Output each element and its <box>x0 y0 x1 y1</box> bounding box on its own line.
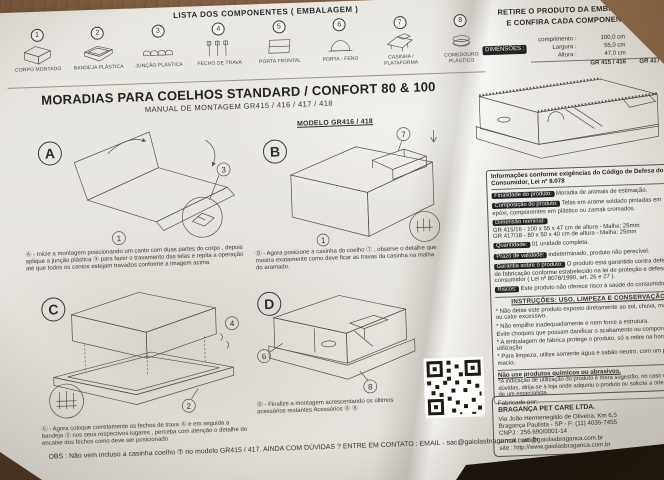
step-c-illustration: 4 2 <box>33 283 245 424</box>
step-c-caption: Ⓒ - Agora coloque corretamente os fechos… <box>41 420 250 448</box>
svg-text:4: 4 <box>230 319 235 328</box>
callout-3: 3 <box>217 163 230 176</box>
plastic-junction-icon <box>139 38 178 63</box>
manual-paper: LISTA DOS COMPONENTES ( EMBALAGEM ) 1 CO… <box>0 0 664 480</box>
svg-text:1: 1 <box>321 236 326 245</box>
component-number: 2 <box>91 27 104 40</box>
svg-text:8: 8 <box>368 382 373 391</box>
consumer-info-panel: Informações conforme exigências do Códig… <box>486 163 664 404</box>
components-row: 1 CORPO MONTADO 2 BANDEJA PLÁSTICA 3 <box>8 13 491 80</box>
svg-text:6: 6 <box>262 352 267 361</box>
dimensions-label: DIMENSÕES : <box>482 45 527 56</box>
finalidade-label: Finalidade do produto: <box>492 191 555 199</box>
photo-of-manual: LISTA DOS COMPONENTES ( EMBALAGEM ) 1 CO… <box>0 0 664 480</box>
front-door-icon <box>260 34 299 59</box>
corner-detail-circle <box>182 197 223 238</box>
component-item-porta-frontal: 5 PORTA FRONTAL <box>249 19 309 66</box>
component-item-juncao: 3 JUNÇÃO PLÁSTICA <box>129 24 189 71</box>
cage-body-icon <box>18 42 57 67</box>
qr-code <box>423 356 485 418</box>
callout-1: 1 <box>317 234 329 246</box>
svg-text:7: 7 <box>401 130 406 139</box>
svg-text:3: 3 <box>221 165 226 174</box>
tray-icon <box>79 40 118 65</box>
feeder-bowl-icon <box>442 27 481 52</box>
component-number: 4 <box>212 22 225 35</box>
step-b-illustration: 7 1 <box>275 126 447 250</box>
component-item-bandeja: 2 BANDEJA PLÁSTICA <box>68 26 128 73</box>
hay-door-icon <box>321 32 360 57</box>
component-number: 5 <box>272 20 285 33</box>
component-number: 3 <box>151 24 164 37</box>
component-number: 6 <box>333 18 346 31</box>
component-item-fecho: 4 FECHO DE TRAVA <box>189 21 249 68</box>
component-item-casinha: 7 CASINHA / PLATAFORMA <box>370 15 430 68</box>
house-platform-icon <box>381 30 420 55</box>
lock-latch-icon <box>200 36 239 61</box>
svg-text:2: 2 <box>186 402 191 411</box>
dimensions-table: DIMENSÕES : comprimento :100,0 cm80,0 cm… <box>482 33 664 73</box>
step-a-caption: Ⓐ - Inicie a montagem posicionando um ca… <box>25 245 244 274</box>
component-number: 7 <box>393 16 406 29</box>
model-label: MODELO GR416 / 418 <box>297 118 373 128</box>
latch-detail-circle <box>409 211 440 242</box>
quantidade-label: Quantidade: <box>493 242 530 249</box>
dimensao-label: Dimensão nominal: <box>493 218 548 226</box>
callout-2: 2 <box>182 399 195 412</box>
component-number: 8 <box>454 14 467 27</box>
step-d-caption: Ⓓ - Finalize a montagem acrescentando os… <box>257 397 409 416</box>
manufacturer-box: Fabricado por: BRAGANÇA PET CARE LTDA. V… <box>492 389 664 457</box>
component-item-corpo: 1 CORPO MONTADO <box>8 28 68 75</box>
callout-8: 8 <box>364 380 377 393</box>
assembled-cage-illustration <box>455 70 664 173</box>
unpack-notice: RETIRE O PRODUTO DA EMBALAGEM E CONFIRA … <box>467 2 664 30</box>
svg-text:1: 1 <box>117 234 122 243</box>
prazo-label: Prazo de validade: <box>494 252 547 260</box>
callout-7: 7 <box>397 127 410 140</box>
callout-4: 4 <box>225 316 238 329</box>
callout-1: 1 <box>112 231 125 244</box>
step-a-illustration: 3 1 <box>57 123 239 251</box>
component-item-porta-feno: 6 PORTA - FENO <box>310 17 370 64</box>
riscos-label: Riscos: <box>495 286 519 293</box>
step-d-illustration: 6 8 <box>253 280 429 400</box>
component-number: 1 <box>30 29 43 42</box>
